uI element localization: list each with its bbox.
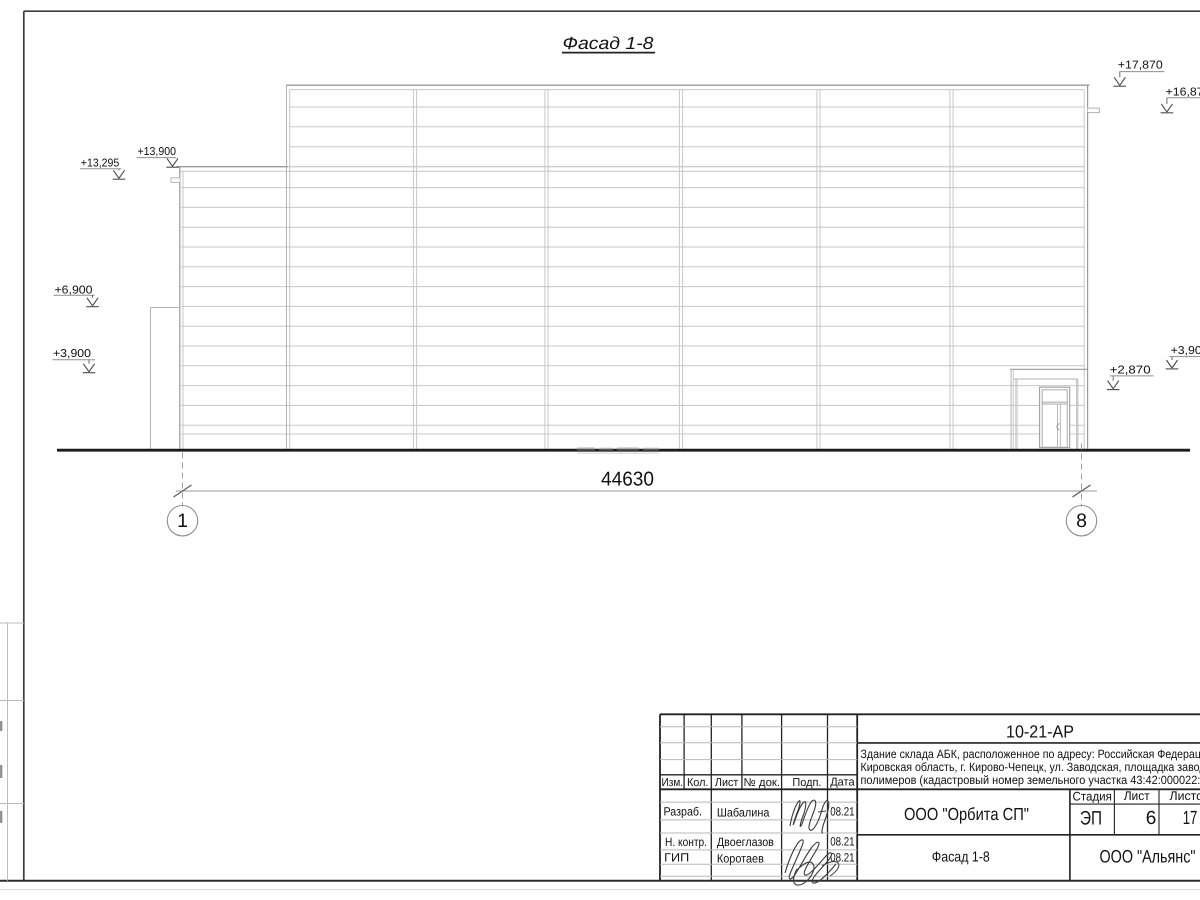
svg-text:08.21: 08.21 (830, 834, 855, 848)
svg-text:+13,900: +13,900 (138, 146, 177, 158)
svg-text:Лист: Лист (715, 777, 739, 789)
svg-text:Разраб.: Разраб. (664, 804, 703, 818)
svg-text:№ док.: № док. (744, 777, 781, 789)
svg-text:+17,870: +17,870 (1118, 59, 1163, 71)
svg-text:Подп.: Подп. (792, 777, 821, 789)
svg-text:Фасад 1-8: Фасад 1-8 (563, 33, 654, 53)
svg-text:+16,870: +16,870 (1166, 86, 1200, 98)
svg-text:Кировская область, г. Кирово-Ч: Кировская область, г. Кирово-Чепецк, ул.… (861, 760, 1200, 774)
svg-text:08.21: 08.21 (830, 805, 855, 819)
svg-text:+3,900: +3,900 (53, 348, 91, 360)
svg-text:6: 6 (1146, 808, 1157, 829)
svg-text:+13,295: +13,295 (81, 157, 120, 169)
svg-text:8: 8 (1076, 510, 1087, 532)
svg-text:+6,900: +6,900 (55, 284, 93, 296)
svg-text:Дата: Дата (830, 777, 855, 789)
svg-text:Здание склада АБК, расположенн: Здание склада АБК, расположенное по адре… (861, 747, 1200, 761)
svg-text:Н. контр.: Н. контр. (665, 835, 707, 849)
svg-text:08.21: 08.21 (830, 851, 855, 865)
svg-text:Листов: Листов (1170, 789, 1200, 803)
svg-text:10-21-АР: 10-21-АР (1006, 721, 1074, 741)
svg-text:ЭП: ЭП (1080, 807, 1102, 829)
svg-text:+2,870: +2,870 (1110, 365, 1151, 377)
svg-text:Изм.: Изм. (662, 777, 684, 789)
svg-text:полимеров (кадастровый номер з: полимеров (кадастровый номер земельного … (861, 773, 1200, 787)
svg-text:17: 17 (1183, 808, 1198, 829)
svg-text:Кол.: Кол. (687, 777, 709, 789)
svg-text:ООО "Альянс": ООО "Альянс" (1100, 846, 1196, 866)
svg-text:Фасад 1-8: Фасад 1-8 (932, 850, 990, 866)
svg-text:ГИП: ГИП (664, 851, 689, 865)
svg-text:+3,900: +3,900 (1171, 345, 1200, 357)
svg-text:Шабалина: Шабалина (717, 806, 770, 820)
svg-text:Двоеглазов: Двоеглазов (717, 835, 774, 849)
svg-text:Стадия: Стадия (1073, 790, 1112, 804)
svg-text:1: 1 (177, 510, 188, 532)
svg-text:ООО "Орбита СП": ООО "Орбита СП" (904, 804, 1029, 824)
svg-text:Лист: Лист (1124, 789, 1150, 803)
svg-text:Коротаев: Коротаев (717, 852, 764, 866)
svg-text:44630: 44630 (601, 469, 654, 491)
